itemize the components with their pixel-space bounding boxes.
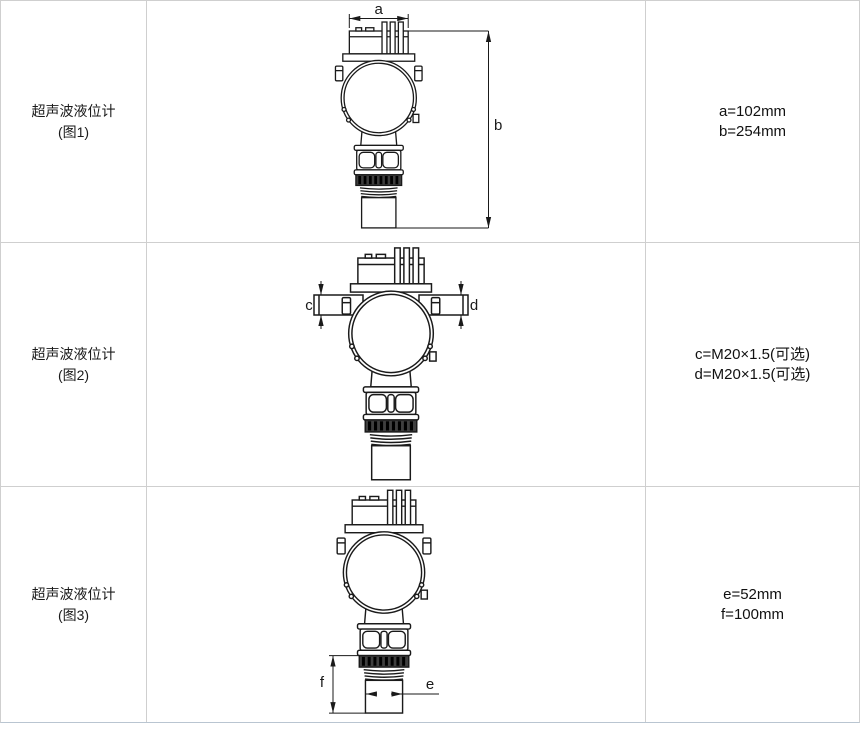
device-name-label: 超声波液位计 [32, 584, 116, 605]
dim-label-a: a [375, 1, 384, 18]
figure-number-label: (图2) [58, 365, 89, 386]
dim-label-b: b [494, 117, 502, 134]
device-name-label: 超声波液位计 [32, 344, 116, 365]
row1-label-cell: 超声波液位计 (图1) [1, 1, 147, 242]
row3-label-cell: 超声波液位计 (图3) [1, 487, 147, 722]
level-gauge-body [349, 248, 436, 480]
spec-value: d=M20×1.5(可选) [695, 365, 811, 385]
dim-label-e: e [426, 676, 434, 693]
device-name-label: 超声波液位计 [32, 101, 116, 122]
figure-2-drawing: c d [147, 243, 645, 486]
dim-label-d: d [470, 297, 478, 314]
spec-table: 超声波液位计 (图1) a b [0, 0, 860, 723]
figure-number-label: (图1) [58, 122, 89, 143]
row1-spec-cell: a=102mm b=254mm [646, 1, 859, 242]
row1-drawing-cell: a b [147, 1, 646, 242]
table-row: 超声波液位计 (图2) c [1, 243, 859, 487]
spec-value: e=52mm [723, 585, 782, 605]
spec-value: a=102mm [719, 102, 786, 122]
table-row: 超声波液位计 (图3) f e [1, 487, 859, 722]
figure-3-drawing: f e [147, 487, 645, 722]
row3-spec-cell: e=52mm f=100mm [646, 487, 859, 722]
row2-spec-cell: c=M20×1.5(可选) d=M20×1.5(可选) [646, 243, 859, 486]
level-gauge-body [343, 490, 427, 713]
spec-value: c=M20×1.5(可选) [695, 345, 810, 365]
level-gauge-body [341, 22, 419, 228]
dim-label-f: f [320, 674, 325, 691]
row3-drawing-cell: f e [147, 487, 646, 722]
dim-label-c: c [305, 297, 313, 314]
row2-label-cell: 超声波液位计 (图2) [1, 243, 147, 486]
table-row: 超声波液位计 (图1) a b [1, 1, 859, 243]
figure-1-drawing: a b [147, 1, 645, 242]
spec-value: f=100mm [721, 605, 784, 625]
figure-number-label: (图3) [58, 605, 89, 626]
spec-value: b=254mm [719, 122, 786, 142]
row2-drawing-cell: c d [147, 243, 646, 486]
